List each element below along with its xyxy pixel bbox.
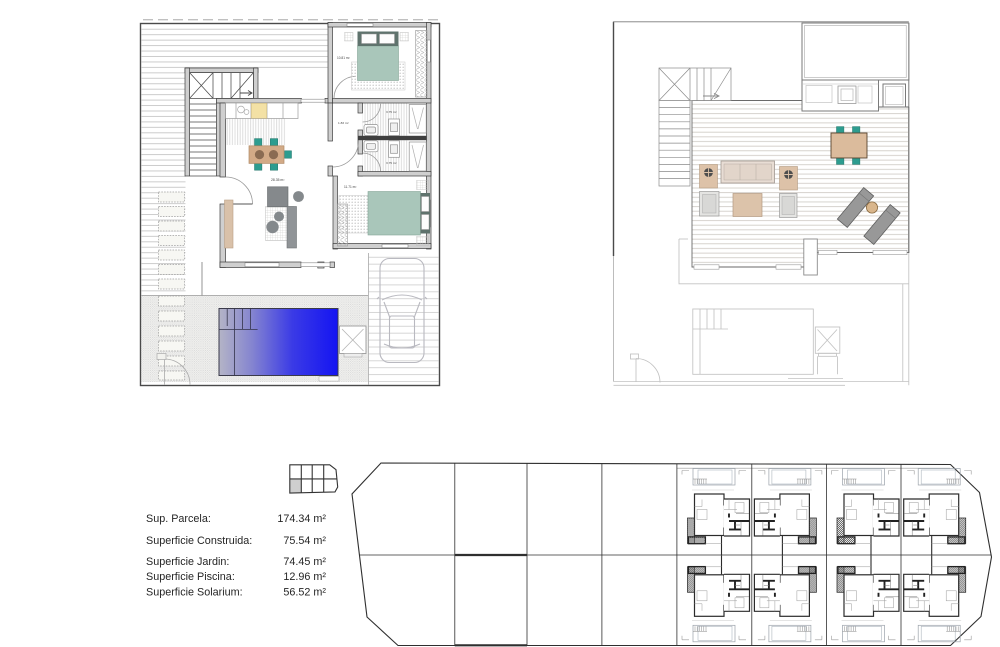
- svg-text:174.34 m²: 174.34 m²: [277, 513, 326, 525]
- svg-text:12.96 m²: 12.96 m²: [283, 571, 326, 583]
- svg-text:28.35 m²: 28.35 m²: [271, 178, 285, 182]
- svg-text:1.83 m²: 1.83 m²: [338, 121, 349, 125]
- svg-text:10.81 m²: 10.81 m²: [337, 56, 350, 60]
- svg-text:Superficie Jardin:: Superficie Jardin:: [146, 556, 229, 568]
- svg-text:11.71 m²: 11.71 m²: [344, 185, 356, 189]
- svg-text:3.75 m²: 3.75 m²: [386, 110, 397, 114]
- svg-text:75.54 m²: 75.54 m²: [283, 535, 326, 547]
- svg-text:56.52 m²: 56.52 m²: [283, 587, 326, 599]
- svg-text:74.45 m²: 74.45 m²: [283, 556, 326, 568]
- svg-text:Superficie Construida:: Superficie Construida:: [146, 535, 252, 547]
- svg-text:Sup. Parcela:: Sup. Parcela:: [146, 513, 211, 525]
- svg-text:Superficie Piscina:: Superficie Piscina:: [146, 571, 235, 583]
- svg-text:Superficie Solarium:: Superficie Solarium:: [146, 587, 243, 599]
- svg-text:3.75 m²: 3.75 m²: [386, 161, 397, 165]
